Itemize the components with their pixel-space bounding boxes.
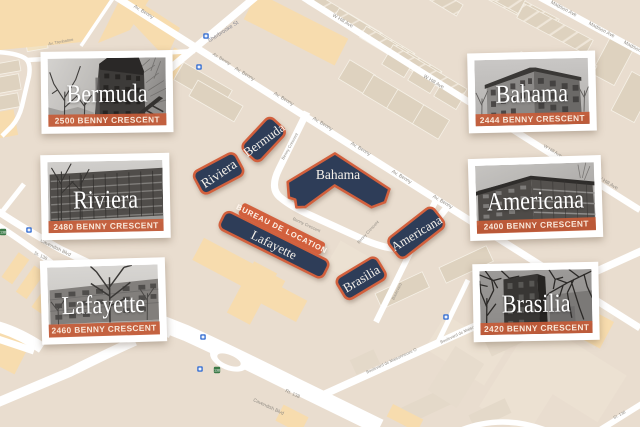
svg-text:Bahama: Bahama: [316, 167, 360, 182]
svg-text:138: 138: [0, 231, 6, 235]
svg-text:138: 138: [214, 369, 220, 373]
